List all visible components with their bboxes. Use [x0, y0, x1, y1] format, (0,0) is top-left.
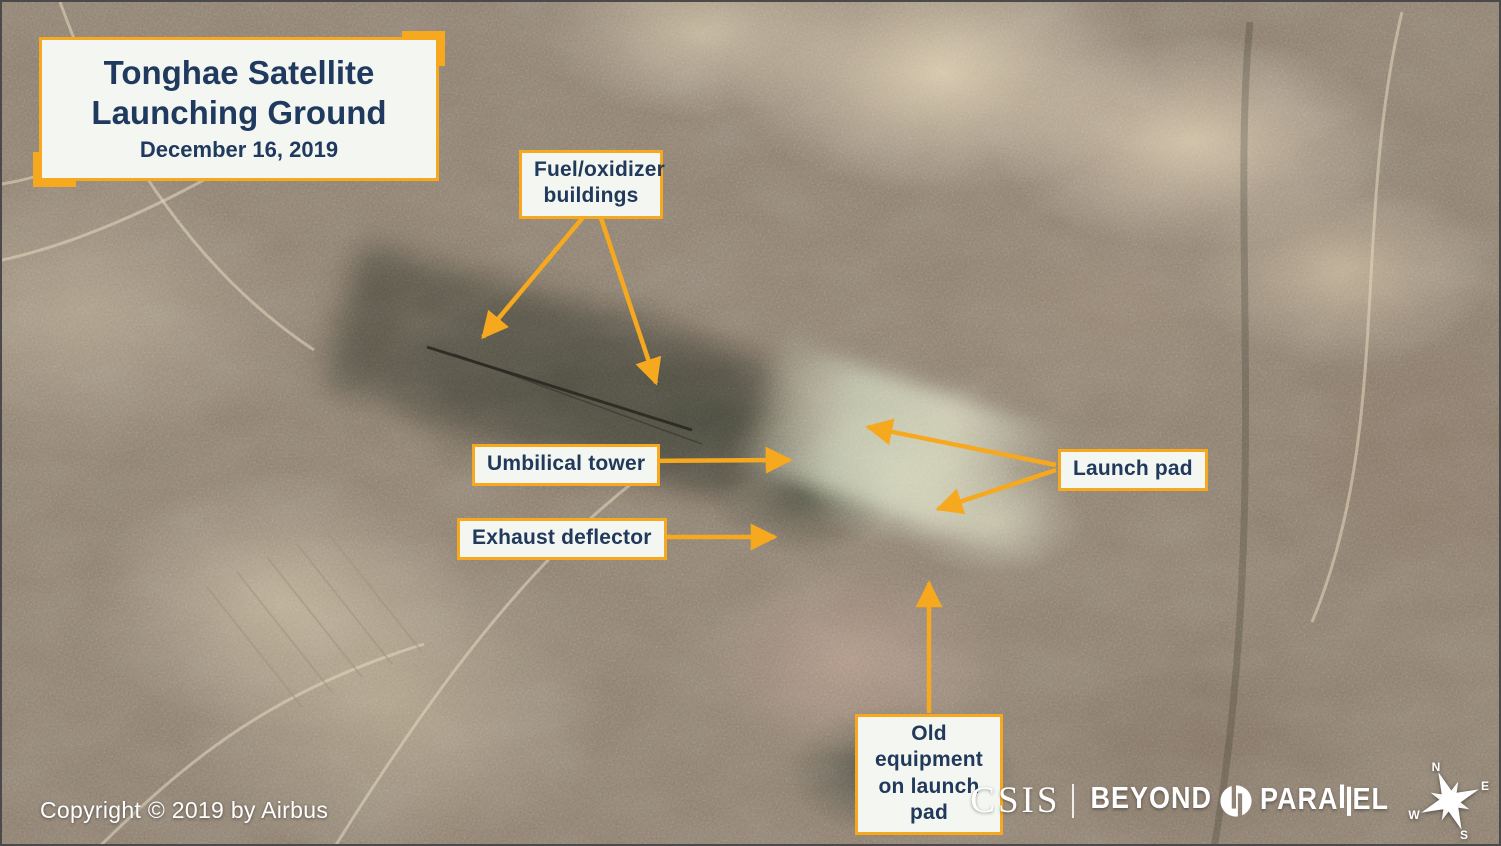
- parallel-suffix: EL: [1352, 782, 1389, 816]
- annotated-satellite-graphic: Tonghae Satellite Launching Ground Decem…: [0, 0, 1501, 846]
- title-line-1: Tonghae Satellite: [50, 53, 428, 93]
- label-fuel-oxidizer-buildings: Fuel/oxidizer buildings: [519, 150, 663, 219]
- parallel-wordmark: PARAEL: [1260, 780, 1389, 817]
- label-fuel-line-1: Fuel/oxidizer: [534, 157, 648, 183]
- beyond-parallel-circle-icon: [1219, 784, 1253, 818]
- parallel-prefix: PARA: [1260, 782, 1339, 816]
- csis-beyond-parallel-logo: CSIS BEYOND PARAEL: [970, 779, 1389, 822]
- title-card: Tonghae Satellite Launching Ground Decem…: [39, 37, 439, 181]
- label-exhaust-deflector: Exhaust deflector: [457, 518, 667, 560]
- logo-divider: [1072, 784, 1074, 818]
- title-line-2: Launching Ground: [50, 93, 428, 133]
- label-fuel-line-2: buildings: [534, 183, 648, 209]
- beyond-wordmark: BEYOND: [1090, 781, 1212, 816]
- parallel-bars-glyph: [1338, 780, 1352, 817]
- compass-west-label: W: [1408, 808, 1420, 822]
- label-umbilical-tower: Umbilical tower: [472, 444, 660, 486]
- csis-wordmark: CSIS: [970, 779, 1060, 822]
- label-old-equipment-line-1: Old equipment: [864, 721, 994, 774]
- label-launch-pad: Launch pad: [1058, 449, 1208, 491]
- copyright-text: Copyright © 2019 by Airbus: [40, 797, 328, 824]
- compass-rose-icon: N E S W: [1405, 760, 1493, 842]
- compass-north-label: N: [1432, 760, 1441, 774]
- compass-east-label: E: [1481, 779, 1489, 793]
- title-date: December 16, 2019: [50, 137, 428, 163]
- compass-south-label: S: [1460, 828, 1468, 842]
